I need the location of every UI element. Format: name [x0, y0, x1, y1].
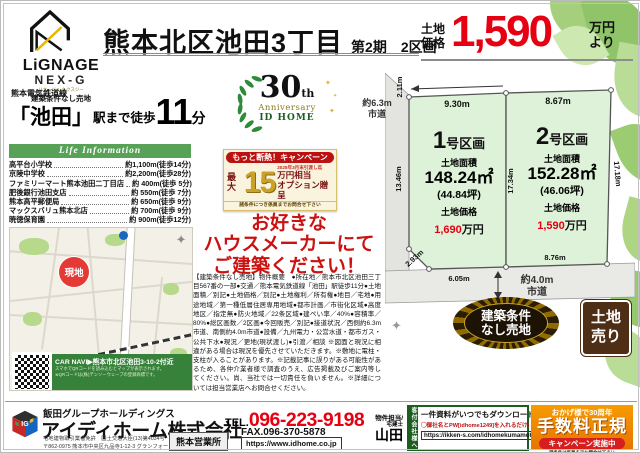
campaign-note: 諸条件につき係員までお問合せ下さい [224, 201, 336, 210]
map-qr-code [12, 352, 52, 391]
dim-lot1-left: 13.46m [394, 166, 403, 192]
car-navi-address: CAR NAVI▶熊本市北区池田3-10-2付近 [55, 356, 193, 366]
star-icon: ✦ [333, 93, 337, 99]
contact-person: 物件担当/ 宅建士 山田 [361, 415, 403, 444]
land-sale-badge: 土地売り [581, 300, 631, 356]
anniversary-badge: ✦ ✦ ✦ 30th Anniversary ID HOME [239, 73, 335, 123]
no-building-conditions-badge: 建築条件なし売地 [453, 297, 559, 349]
lignage-house-icon [25, 7, 75, 57]
price-label: 土地 価格 [421, 22, 445, 51]
area-map: 池田駅 現地 CAR NAVI▶熊本市北区池田3-10-2付近 スマホでQRコー… [9, 227, 193, 391]
campaign-max: 最大 [227, 173, 244, 192]
compass-icon [176, 231, 187, 249]
price-unit: 万円 より [589, 21, 615, 51]
dim-lot2-right: 17.18m [612, 161, 623, 187]
office-badge: 熊本営業所 [169, 432, 228, 451]
agent-label: 客付会社様へ [409, 407, 418, 449]
svg-text:IG: IG [21, 421, 29, 428]
life-information-header: Life Information [9, 144, 191, 158]
dim-lot1-top: 9.30m [444, 99, 470, 109]
dim-lot1-topleft: 2.11m [395, 76, 404, 97]
lot1-info: 1号区画 土地面積 148.24㎡ (44.84坪) 土地価格 1,690万円 [413, 129, 505, 239]
life-information-list: 高平台小学校約1,100m(徒歩14分) 京陵中学校約2,200m(徒歩28分)… [9, 161, 191, 225]
walk-minutes: 11 [156, 97, 192, 128]
walk-unit: 分 [192, 109, 206, 127]
list-item: 暁徳保育園約 900m(徒歩12分) [9, 216, 191, 225]
star-icon: ✦ [325, 79, 331, 87]
agent-download-box: 客付会社様へ 一件資料がいつでもダウンロードできます ◯御社名とPW[idhom… [407, 405, 529, 451]
walk-label: 駅まで徒歩 [93, 110, 156, 128]
road-bottom-label: 市道 [527, 285, 547, 298]
laurel-icon [231, 69, 301, 139]
car-navi-strip: CAR NAVI▶熊本市北区池田3-10-2付近 スマホでQRコードを読み込むと… [50, 354, 193, 391]
campaign-amount: 15 [244, 169, 275, 196]
dim-lot2-top: 8.67m [545, 96, 571, 106]
road-bottom-width: 約4.0m [521, 273, 554, 286]
compass-icon [391, 317, 402, 335]
fee-campaign-title: 手数料正規 [531, 418, 633, 437]
campaign-title: もっと断熱！キャンペーン [226, 152, 334, 163]
station-name: 「池田」 [9, 107, 93, 128]
dim-lot2-bottom: 8.76m [544, 253, 566, 262]
road-left-label: 約6.3m 市道 [355, 98, 399, 120]
dim-lot1-bottom: 6.05m [448, 274, 470, 283]
fee-campaign-box: おかげ様で30周年 手数料正規 キャンペーン実施中 諸条件は係員までお問合せ下さ… [531, 405, 633, 449]
footer-divider [5, 401, 637, 402]
lot2-info: 2号区画 土地面積 152.28㎡ (46.06坪) 土地価格 1,590万円 [513, 125, 611, 235]
flyer: LiGNAGE NEX-G リナージュ ネクスジー 建築条件なし売地 熊本北区池… [0, 0, 640, 453]
campaign-banner: もっと断熱！キャンペーン 最大 15 2025年3月末引渡し迄 万円相当 オプシ… [223, 149, 337, 211]
price-value: 1,590 [451, 10, 551, 54]
star-icon: ✦ [329, 107, 335, 115]
site-marker: 現地 [59, 257, 89, 287]
title-underline [103, 53, 419, 56]
property-overview: 【建築条件なし売地】物件概要 ●所在地／熊本市北区池田三丁目567番の一部●交通… [193, 273, 381, 393]
brand-nexg: NEX-G [13, 73, 109, 87]
company-url: https://www.idhome.co.jp [241, 437, 342, 450]
appeal-message: お好きな ハウスメーカーにて ご建築ください！ [189, 213, 389, 277]
iida-group-logo: IG [11, 409, 39, 439]
station-access: 「池田」 駅まで徒歩 11 分 [9, 97, 206, 128]
